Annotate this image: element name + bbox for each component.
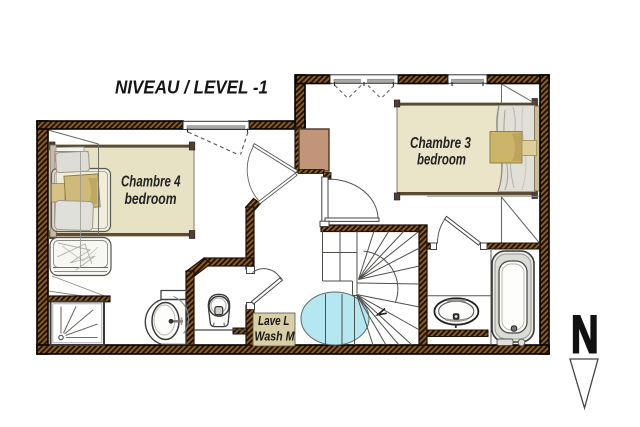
svg-text:Chambre 3: Chambre 3 — [410, 135, 471, 152]
svg-text:N: N — [571, 304, 599, 364]
svg-text:bedroom: bedroom — [417, 152, 466, 169]
svg-text:Wash M: Wash M — [255, 330, 295, 344]
svg-text:NIVEAU / LEVEL -1: NIVEAU / LEVEL -1 — [115, 78, 268, 98]
svg-text:bedroom: bedroom — [125, 191, 177, 208]
svg-text:Lave L: Lave L — [258, 314, 290, 328]
svg-text:Chambre 4: Chambre 4 — [121, 173, 181, 190]
